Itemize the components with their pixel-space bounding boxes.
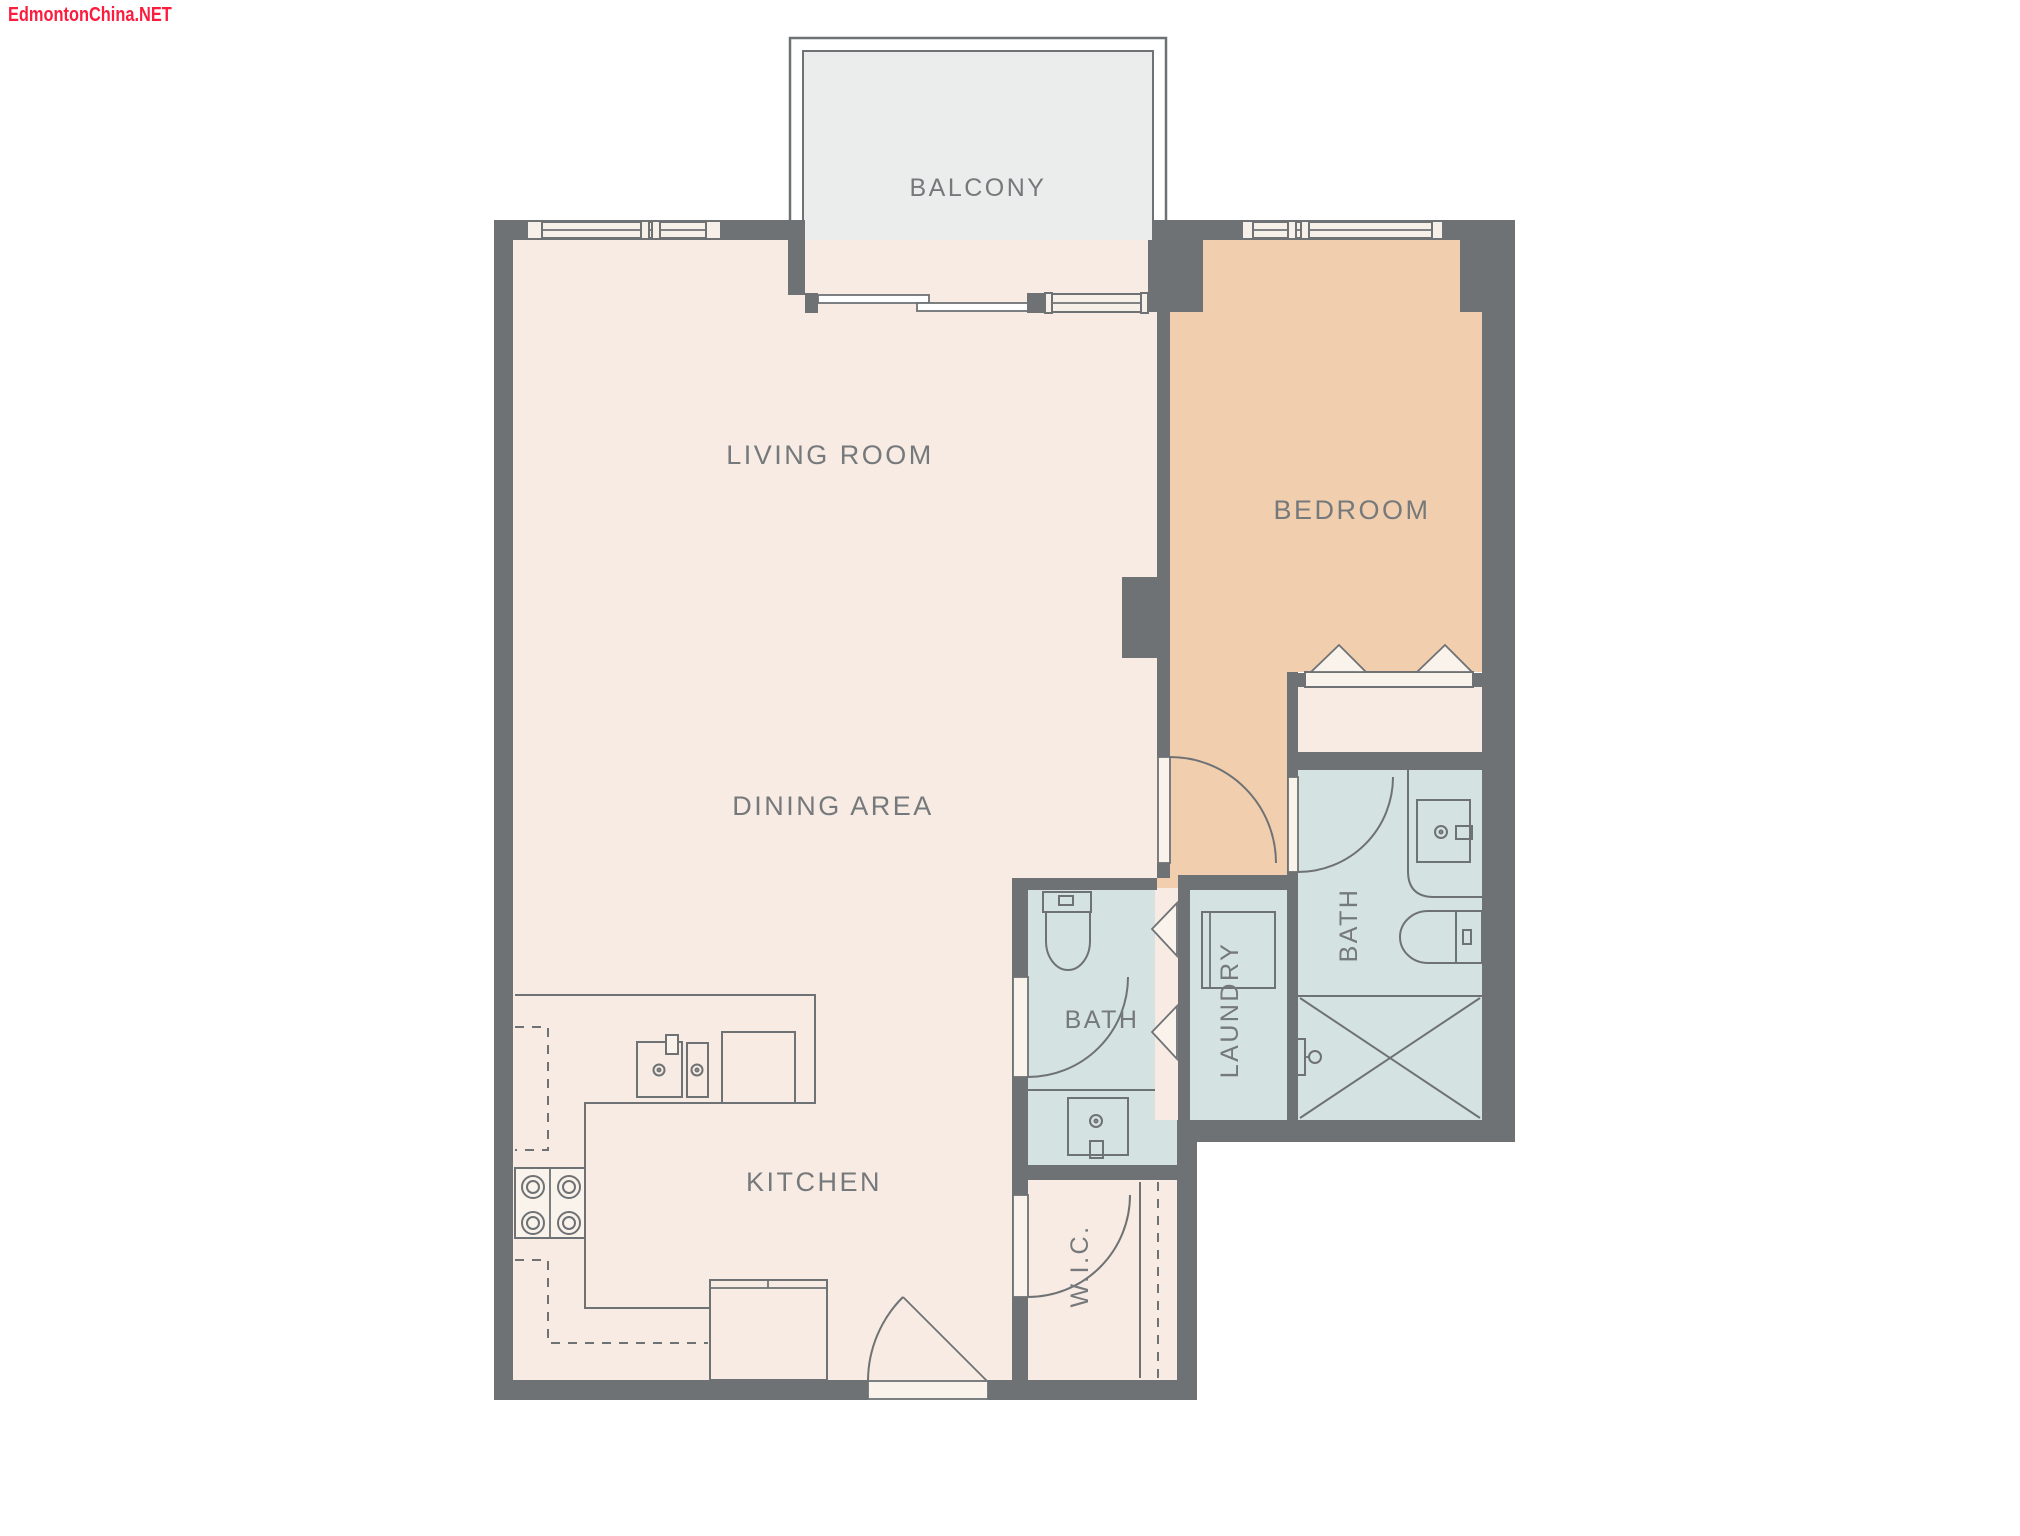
- living-room-window: [527, 221, 721, 239]
- label-living-room: LIVING ROOM: [726, 440, 934, 470]
- watermark: EdmontonChina.NET: [8, 2, 172, 25]
- bedroom-window: [1242, 221, 1443, 239]
- sliding-door: [805, 293, 1148, 313]
- window-under-balcony: [1045, 293, 1148, 313]
- label-kitchen: KITCHEN: [746, 1167, 882, 1197]
- floor-plan-page: BALCONY LIVING ROOM BEDROOM DINING AREA …: [0, 0, 2020, 1536]
- label-balcony: BALCONY: [910, 174, 1047, 202]
- label-bedroom: BEDROOM: [1273, 495, 1430, 525]
- room-bath-ensuite: [1298, 770, 1482, 1120]
- label-dining-area: DINING AREA: [732, 791, 934, 821]
- label-laundry: LAUNDRY: [1216, 942, 1244, 1079]
- room-walk-in-closet: [1028, 1180, 1177, 1380]
- bedroom-closet: [1298, 687, 1482, 752]
- label-wic: W.I.C.: [1066, 1224, 1094, 1307]
- cooktop-symbol: [515, 1168, 585, 1238]
- label-bath-main: BATH: [1065, 1006, 1140, 1034]
- floor-plan: BALCONY LIVING ROOM BEDROOM DINING AREA …: [0, 0, 2020, 1536]
- label-bath-ensuite: BATH: [1335, 888, 1363, 963]
